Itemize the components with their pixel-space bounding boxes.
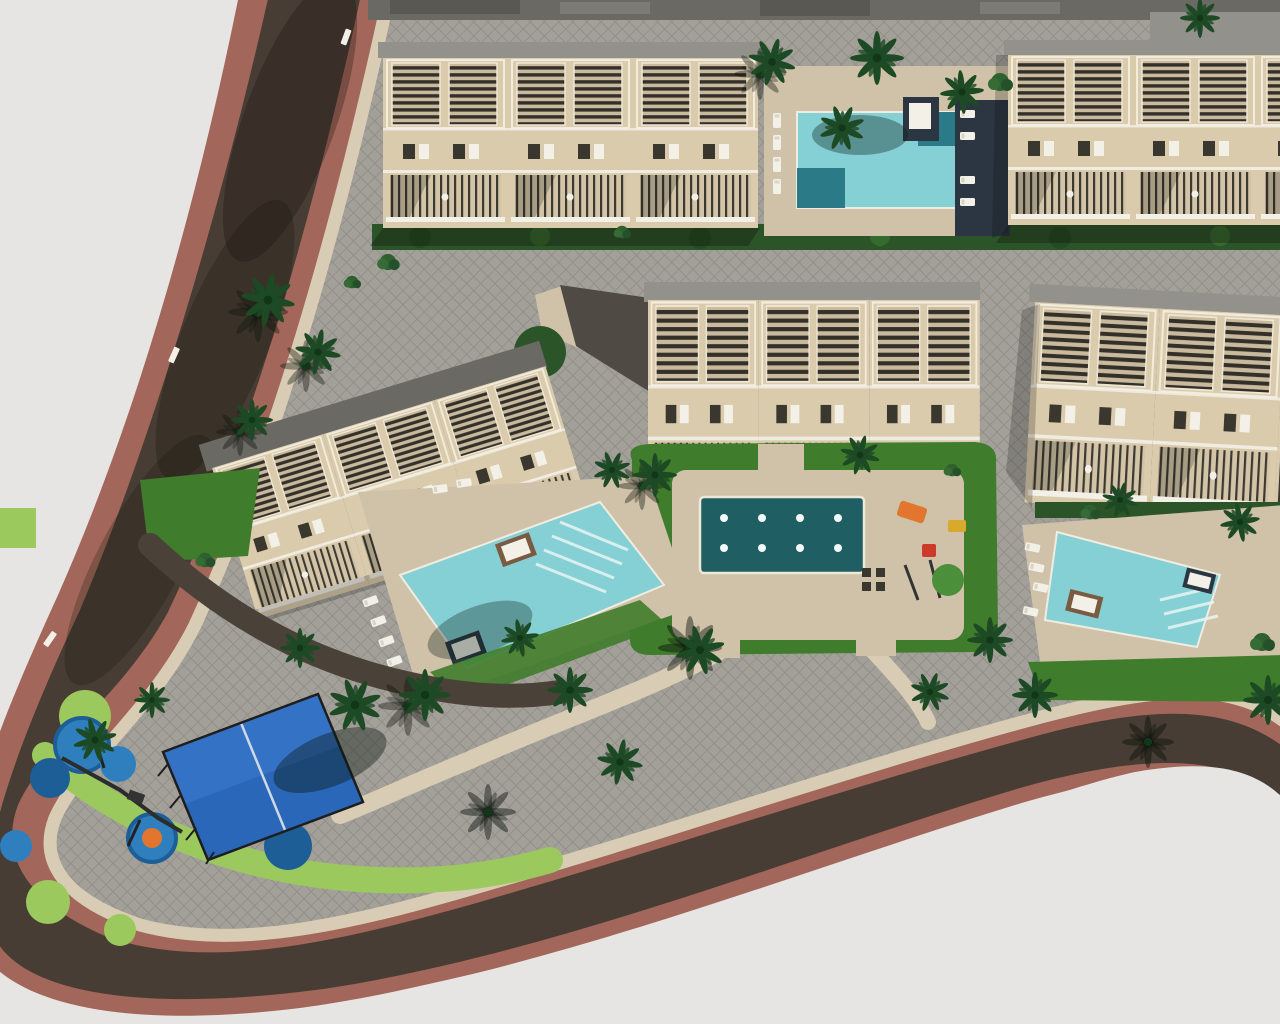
site-plan-svg: [0, 0, 1280, 1024]
aerial-render: [0, 0, 1280, 1024]
townhouse-row-top-left: [370, 42, 764, 246]
townhouse-row-right: [1006, 284, 1280, 518]
townhouse-row-top-right: [992, 40, 1280, 243]
